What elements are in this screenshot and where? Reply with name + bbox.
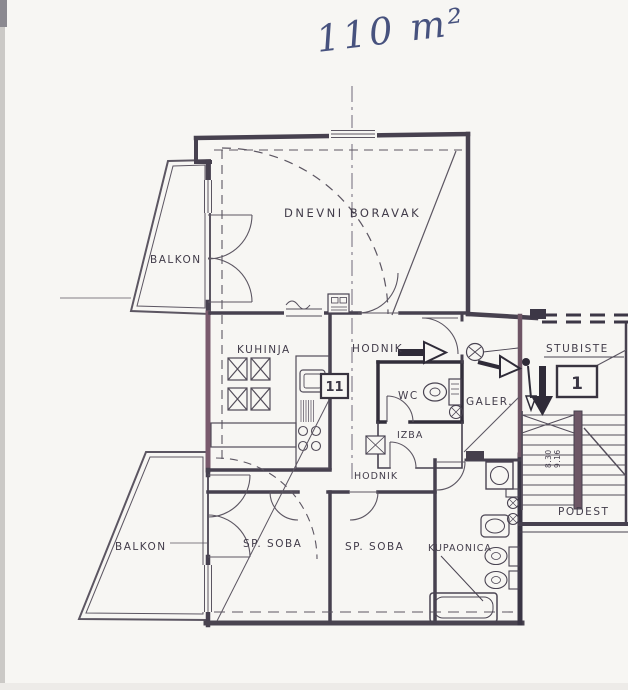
bathroom-fixtures: [430, 451, 519, 622]
gallery-arrow-shaft: [478, 362, 502, 368]
kitchen-table-icon: [228, 358, 270, 410]
bathroom-diagonal: [441, 556, 483, 601]
stair-start-cross: [522, 415, 574, 433]
newel-post-icon: [522, 358, 530, 366]
staircase-structure: [522, 411, 626, 510]
wall-mid-ext: [468, 314, 536, 318]
entrance-number-box: 1: [557, 366, 597, 397]
bedroom2-door: [350, 492, 378, 520]
label-kitchen: KUHINJA: [237, 344, 291, 356]
label-bedroom2: SP. SOBA: [345, 541, 404, 553]
label-bathroom: KUPAONICA: [428, 543, 492, 554]
label-hall-upper: HODNIK: [352, 343, 403, 355]
stair-dim-a: 8.30: [544, 449, 553, 468]
room-labels: DNEVNI BORAVAK BALKON BALKON KUHINJA HOD…: [115, 206, 624, 554]
label-staircase: STUBISTE: [546, 343, 609, 355]
bathroom-door: [437, 462, 465, 490]
balcony-door-lower-a: [208, 475, 250, 517]
chimney-flue-icon-2: [366, 436, 385, 454]
stair-dimensions: 8.30 9.16: [544, 449, 562, 468]
stair-dim-b: 9.16: [553, 449, 562, 468]
label-pantry: IZBA: [397, 430, 423, 441]
opening-squiggle: [286, 301, 310, 309]
entrance-number-label: 1: [571, 374, 583, 394]
stair-treads-right: [582, 415, 626, 495]
bidet-icon: [485, 571, 519, 589]
label-gallery: GALER.: [466, 396, 513, 408]
balcony-door-lower-b: [208, 515, 250, 557]
gallery-arrow-icon: [500, 356, 520, 377]
kitchen-counter-bottom: [211, 423, 296, 447]
living-diagonal-line: [392, 151, 456, 315]
pantry-door: [390, 442, 416, 468]
label-wc: WC: [398, 390, 419, 402]
label-bedroom1: SP. SOBA: [243, 538, 302, 550]
label-balcony-upper: BALKON: [150, 254, 202, 266]
balcony-door-upper-a: [208, 215, 252, 259]
balcony-lower: [79, 452, 208, 620]
bedroom1-door: [270, 492, 298, 520]
label-hall-lower: HODNIK: [354, 471, 398, 482]
scan-edge-shadows: [0, 0, 628, 690]
label-landing: PODEST: [558, 506, 609, 518]
label-balcony-lower: BALKON: [115, 541, 167, 553]
unit-number-label: 11: [325, 380, 343, 395]
stair-spine-wall: [574, 411, 582, 509]
balcony-upper: [60, 160, 210, 314]
scan-corner-mark: [0, 0, 7, 27]
entry-arrow-icon: [424, 342, 446, 363]
scan-left-edge: [0, 0, 5, 690]
adjacent-building-dashed: [542, 315, 628, 322]
leader-line-unit: [217, 400, 329, 621]
stairs-down-arrow-shaft: [539, 366, 546, 398]
living-room-door: [358, 273, 398, 313]
kitchen-fixtures: [211, 301, 329, 468]
wall-marker-block: [530, 309, 546, 319]
wall-topleft-jog: [196, 138, 210, 162]
scan-bottom-edge: [0, 683, 628, 690]
kitchen-appliance-hatch: [301, 400, 314, 422]
valve-icons: [506, 489, 519, 525]
wc-toilet-icon: [424, 379, 462, 405]
balcony-door-upper-b: [208, 258, 252, 302]
large-swing-dashed-arc: [222, 148, 388, 314]
chimney-flue-icon: [328, 294, 349, 313]
wall-vent-icon: [466, 451, 484, 460]
floor-plan-drawing: 110 m²: [0, 0, 628, 690]
wall-izba: [378, 422, 462, 468]
unit-number-box: 11: [321, 374, 348, 398]
handwritten-area-note: 110 m²: [314, 0, 468, 61]
label-living-room: DNEVNI BORAVAK: [284, 206, 421, 220]
scanned-floor-plan: 110 m²: [0, 0, 628, 690]
